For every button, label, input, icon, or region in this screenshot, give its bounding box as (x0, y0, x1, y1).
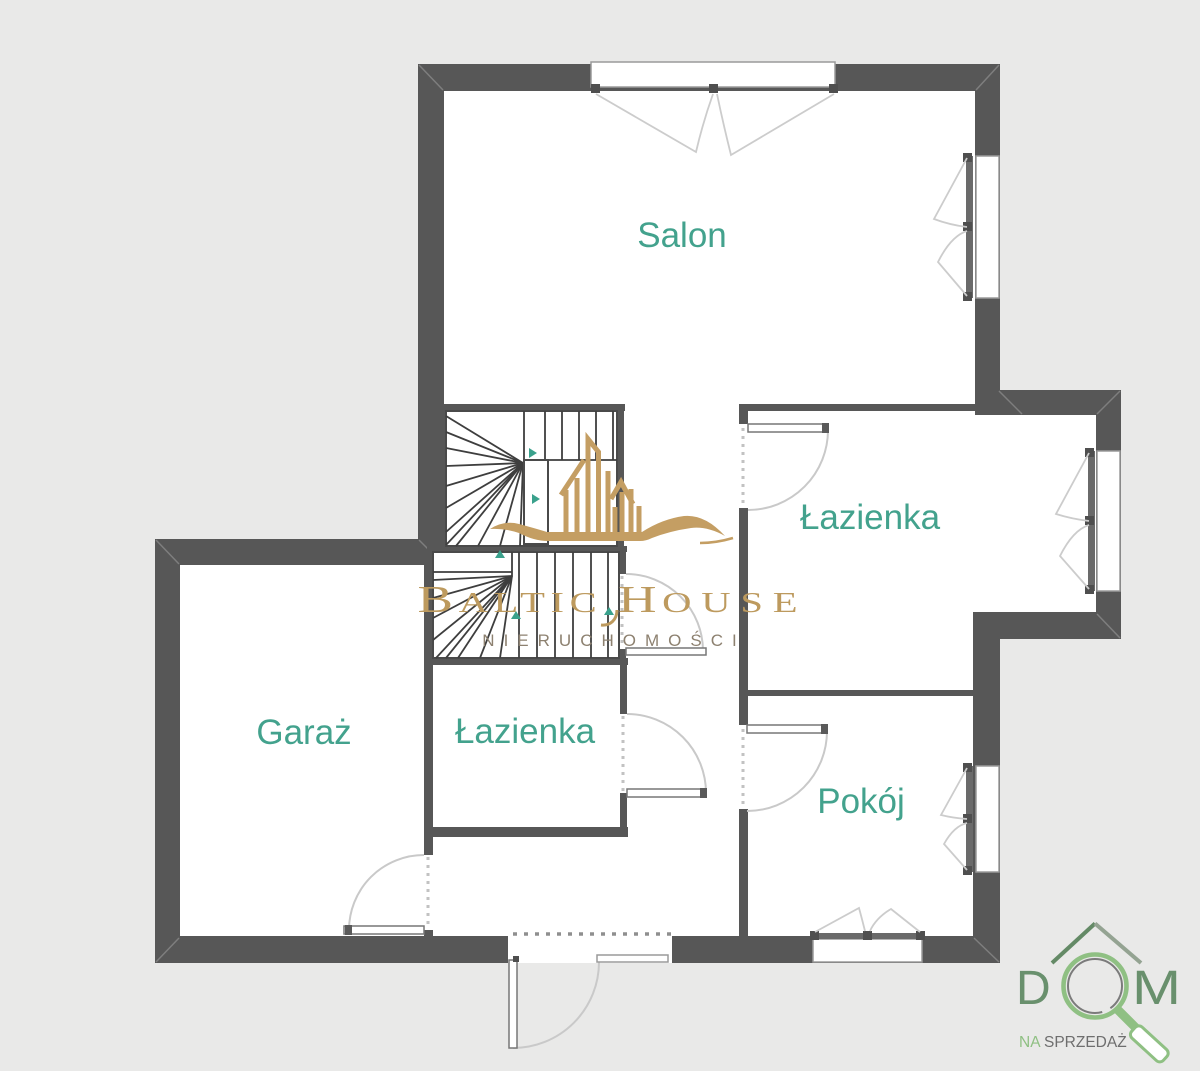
svg-text:D: D (1016, 962, 1051, 1015)
svg-text:M: M (1132, 962, 1181, 1015)
svg-text:Garaż: Garaż (256, 713, 351, 752)
svg-text:NIERUCHOMOŚCI: NIERUCHOMOŚCI (482, 631, 745, 650)
svg-text:Łazienka: Łazienka (455, 712, 596, 751)
svg-text:Salon: Salon (637, 216, 727, 255)
svg-text:Pokój: Pokój (817, 782, 905, 821)
svg-text:NA SPRZEDAŻ: NA SPRZEDAŻ (1019, 1033, 1127, 1051)
svg-text:Łazienka: Łazienka (800, 498, 941, 537)
